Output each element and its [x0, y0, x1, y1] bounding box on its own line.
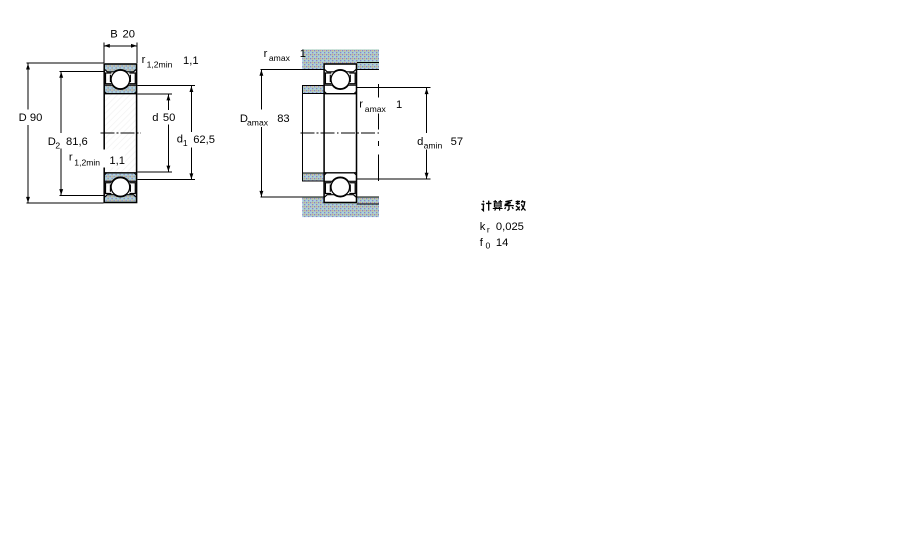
svg-text:57: 57: [451, 136, 463, 148]
svg-text:r: r: [359, 99, 363, 111]
svg-text:1,1: 1,1: [183, 55, 199, 67]
svg-text:amax: amax: [247, 117, 269, 127]
svg-text:amin: amin: [424, 140, 443, 150]
svg-text:1: 1: [183, 138, 188, 148]
svg-text:14: 14: [496, 237, 508, 249]
svg-text:r: r: [264, 48, 268, 60]
svg-text:1,2min: 1,2min: [147, 60, 173, 70]
svg-text:1: 1: [396, 99, 402, 111]
svg-text:0,025: 0,025: [496, 221, 524, 233]
svg-text:amax: amax: [269, 53, 291, 63]
svg-text:1,1: 1,1: [109, 155, 125, 167]
svg-text:20: 20: [123, 28, 135, 40]
svg-text:d: d: [417, 136, 423, 148]
svg-text:81,6: 81,6: [66, 136, 88, 148]
svg-text:1,2min: 1,2min: [74, 157, 100, 167]
svg-text:D: D: [19, 112, 27, 124]
svg-text:1: 1: [300, 48, 306, 60]
svg-text:50: 50: [163, 112, 175, 124]
svg-text:B: B: [110, 28, 117, 40]
svg-text:k: k: [480, 221, 486, 233]
svg-text:2: 2: [55, 140, 60, 150]
svg-text:r: r: [69, 152, 73, 164]
svg-text:d: d: [152, 112, 158, 124]
svg-text:r: r: [142, 54, 146, 66]
svg-text:amax: amax: [365, 104, 387, 114]
svg-text:62,5: 62,5: [193, 134, 215, 146]
svg-text:83: 83: [277, 113, 289, 125]
svg-text:r: r: [487, 225, 490, 235]
svg-text:90: 90: [30, 112, 42, 124]
svg-text:0: 0: [486, 241, 491, 251]
